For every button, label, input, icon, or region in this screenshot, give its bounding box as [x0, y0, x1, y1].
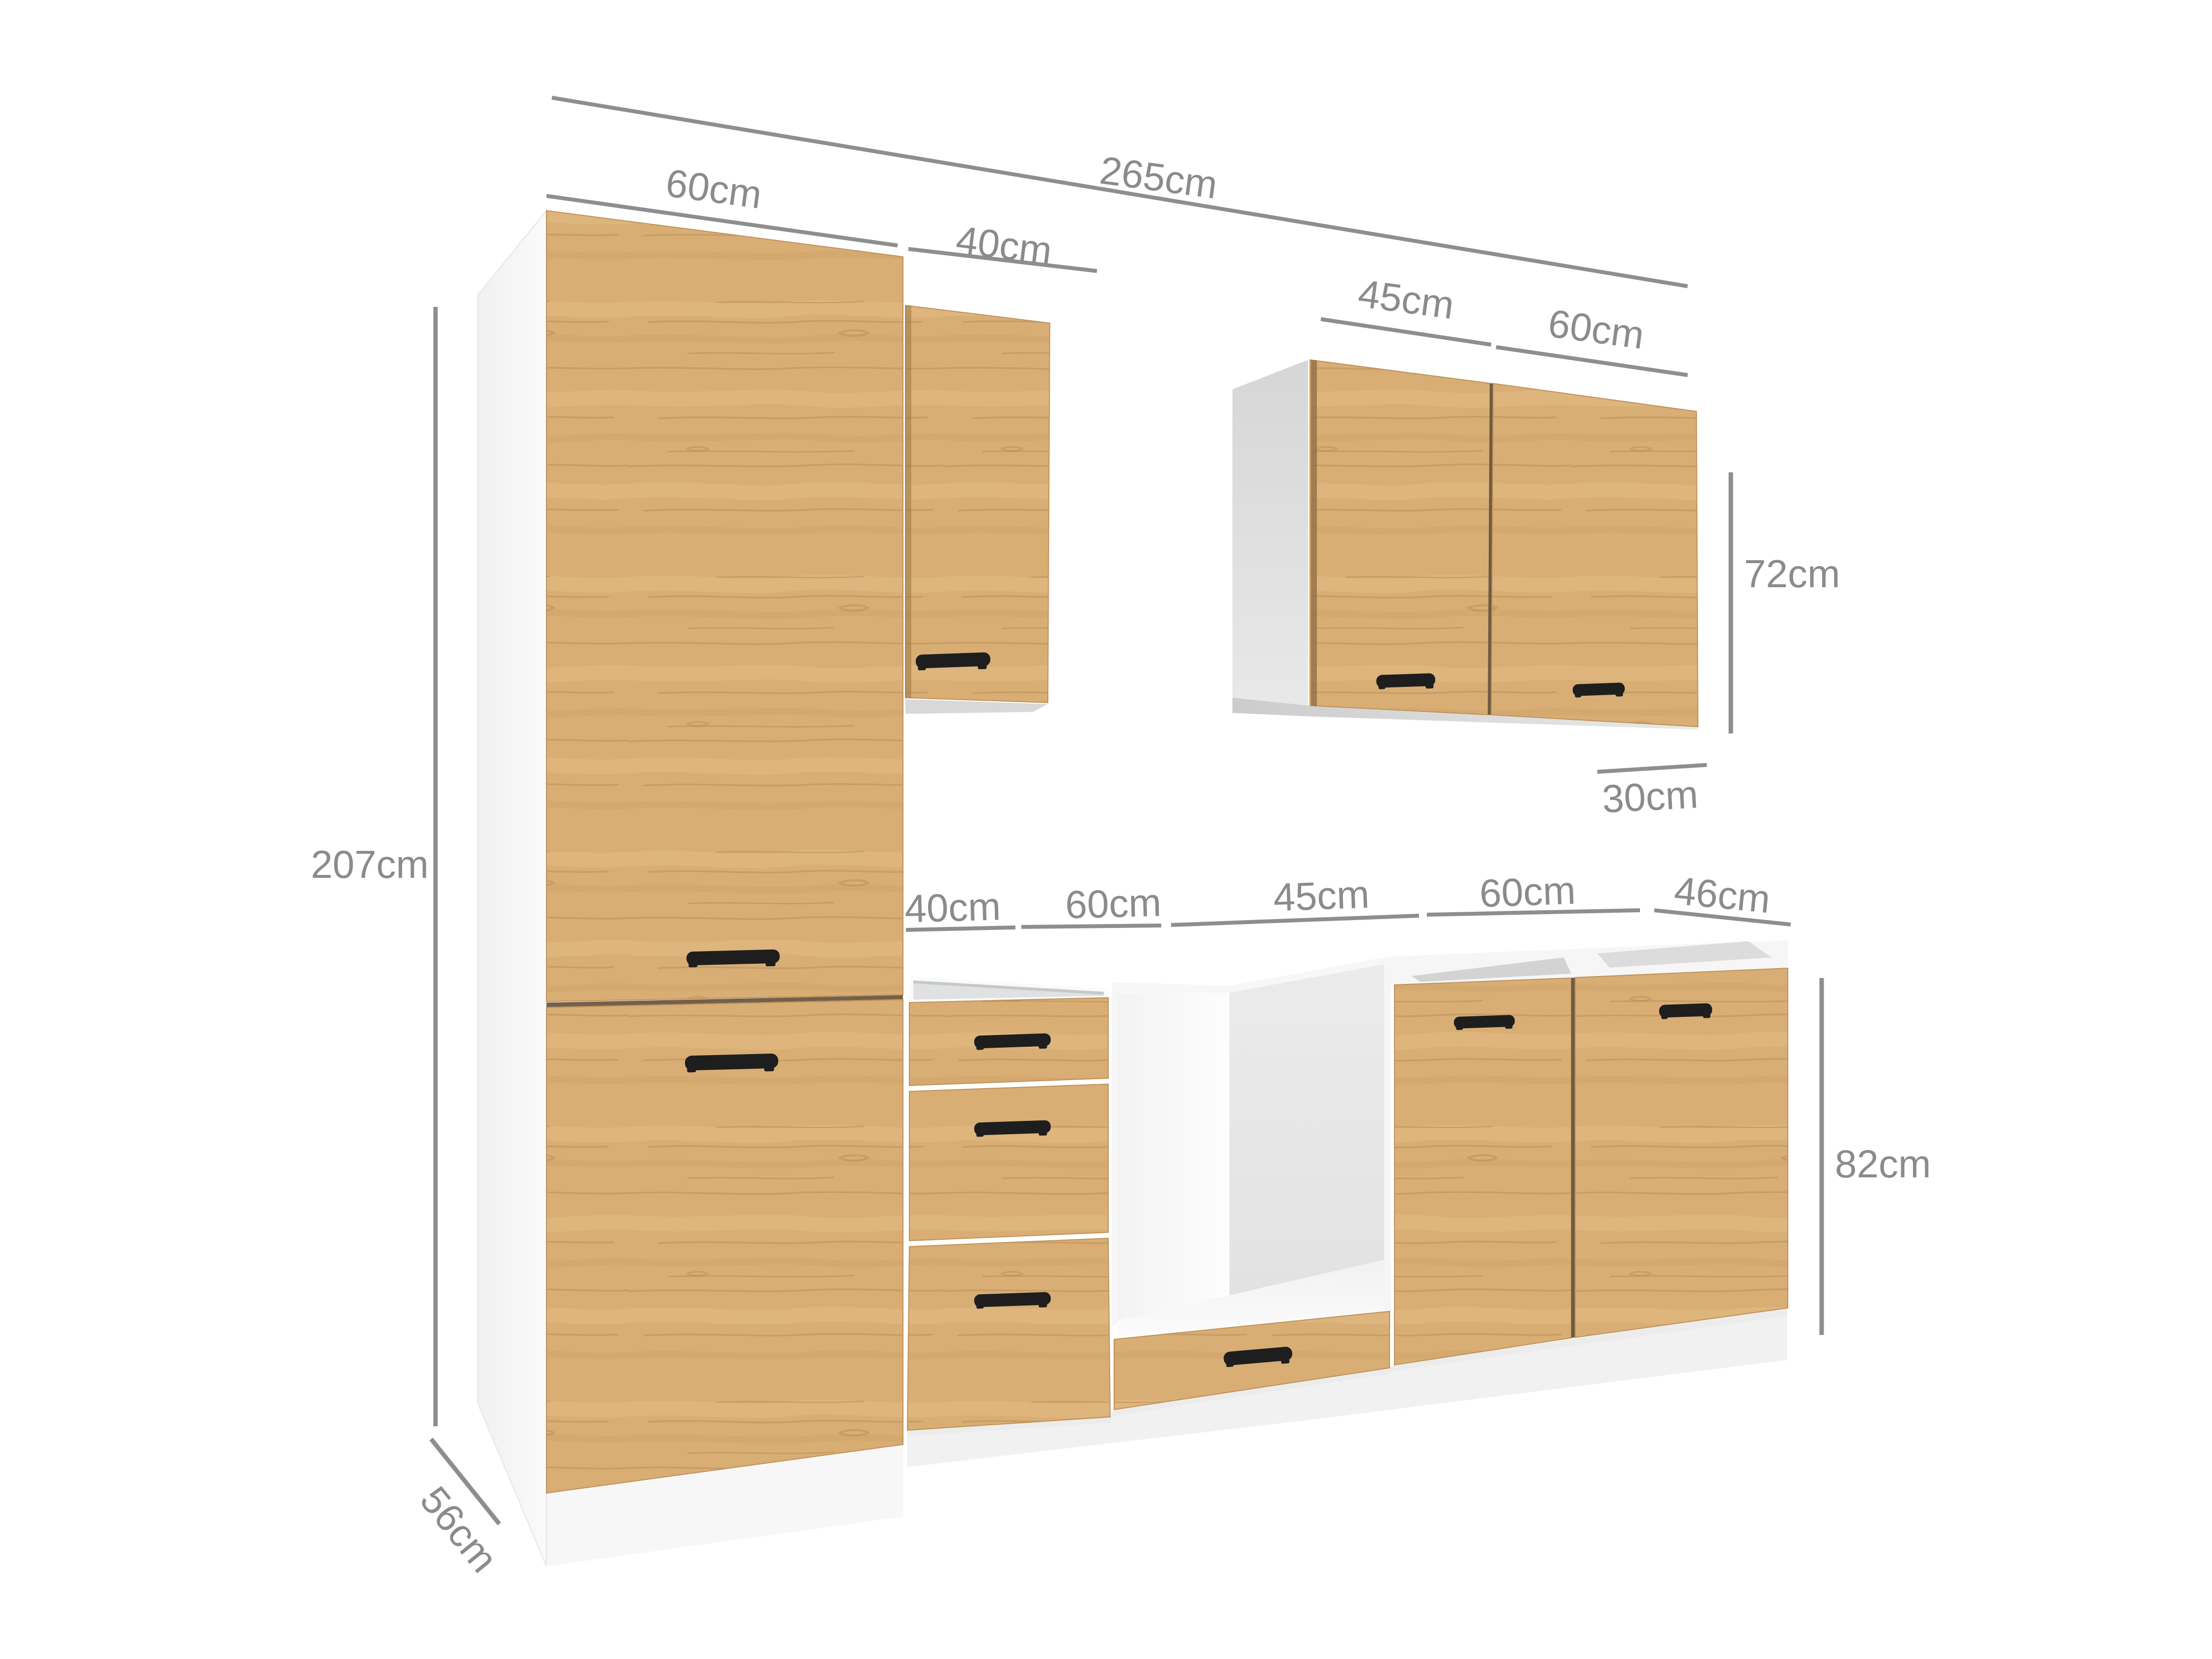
svg-text:72cm: 72cm — [1744, 552, 1840, 596]
svg-text:45cm: 45cm — [1273, 872, 1370, 920]
svg-text:40cm: 40cm — [904, 884, 1001, 930]
svg-text:60cm: 60cm — [1065, 880, 1162, 926]
svg-text:60cm: 60cm — [1479, 869, 1577, 916]
svg-text:207cm: 207cm — [311, 843, 429, 886]
svg-text:46cm: 46cm — [1672, 869, 1772, 921]
svg-text:82cm: 82cm — [1835, 1142, 1931, 1186]
svg-text:30cm: 30cm — [1601, 772, 1699, 821]
